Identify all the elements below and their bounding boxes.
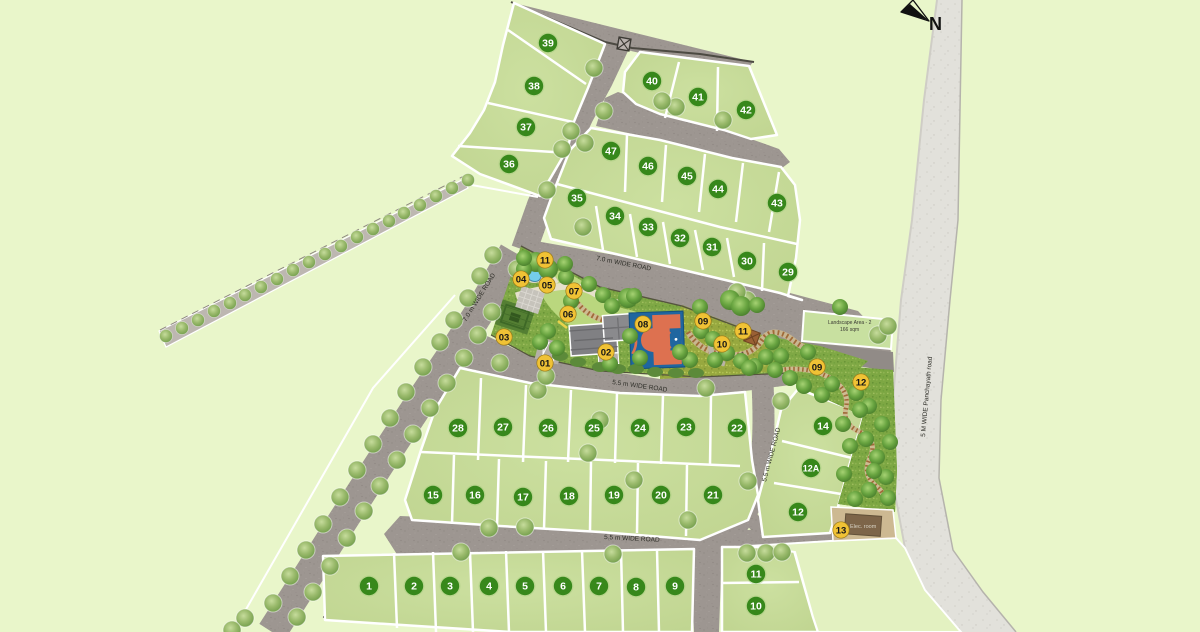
svg-text:24: 24 <box>634 423 646 435</box>
svg-text:3: 3 <box>447 581 453 593</box>
svg-text:47: 47 <box>605 146 617 158</box>
svg-text:32: 32 <box>674 233 686 245</box>
svg-text:39: 39 <box>542 38 554 50</box>
svg-text:14: 14 <box>817 421 829 433</box>
svg-text:46: 46 <box>642 161 654 173</box>
svg-text:9: 9 <box>672 581 678 593</box>
svg-text:166 sqm: 166 sqm <box>840 327 859 333</box>
svg-text:38: 38 <box>528 81 540 93</box>
svg-text:41: 41 <box>692 92 704 104</box>
svg-text:33: 33 <box>642 222 654 234</box>
svg-text:1: 1 <box>366 581 372 593</box>
svg-text:Elec. room: Elec. room <box>850 524 877 530</box>
svg-text:20: 20 <box>655 490 667 502</box>
svg-text:N: N <box>929 14 942 34</box>
svg-text:23: 23 <box>680 422 692 434</box>
svg-text:01: 01 <box>540 358 551 369</box>
svg-text:12: 12 <box>856 377 867 388</box>
svg-text:10: 10 <box>750 601 762 613</box>
svg-text:22: 22 <box>731 423 743 435</box>
svg-text:6: 6 <box>560 581 566 593</box>
svg-text:31: 31 <box>706 242 718 254</box>
svg-text:16: 16 <box>469 490 481 502</box>
svg-text:27: 27 <box>497 422 509 434</box>
svg-text:09: 09 <box>698 316 709 327</box>
svg-text:21: 21 <box>707 490 719 502</box>
svg-text:26: 26 <box>542 423 554 435</box>
svg-text:29: 29 <box>782 267 794 279</box>
svg-text:06: 06 <box>563 309 574 320</box>
svg-text:42: 42 <box>740 105 752 117</box>
svg-text:12: 12 <box>792 507 804 519</box>
svg-text:18: 18 <box>563 491 575 503</box>
svg-text:17: 17 <box>517 492 529 504</box>
svg-text:11: 11 <box>738 326 749 337</box>
svg-text:05: 05 <box>542 280 553 291</box>
svg-text:09: 09 <box>812 362 823 373</box>
svg-text:34: 34 <box>609 211 621 223</box>
svg-text:08: 08 <box>638 319 649 330</box>
svg-text:02: 02 <box>601 347 612 358</box>
svg-text:11: 11 <box>750 569 761 581</box>
svg-text:25: 25 <box>588 423 600 435</box>
svg-text:15: 15 <box>427 490 439 502</box>
svg-text:36: 36 <box>503 159 515 171</box>
svg-text:12A: 12A <box>803 464 820 474</box>
svg-text:13: 13 <box>836 525 847 536</box>
svg-text:04: 04 <box>516 274 527 285</box>
svg-text:44: 44 <box>712 184 724 196</box>
svg-text:40: 40 <box>646 76 658 88</box>
svg-text:37: 37 <box>520 122 532 134</box>
svg-text:10: 10 <box>717 339 728 350</box>
svg-text:5: 5 <box>522 581 528 593</box>
svg-text:03: 03 <box>499 332 510 343</box>
svg-text:4: 4 <box>486 581 492 593</box>
svg-text:43: 43 <box>771 198 783 210</box>
svg-text:Landscape Area - 2: Landscape Area - 2 <box>828 320 872 326</box>
svg-text:45: 45 <box>681 171 693 183</box>
svg-text:19: 19 <box>608 490 620 502</box>
svg-text:8: 8 <box>633 582 639 594</box>
svg-text:2: 2 <box>411 581 417 593</box>
svg-text:30: 30 <box>741 256 753 268</box>
svg-text:28: 28 <box>452 423 464 435</box>
svg-text:35: 35 <box>571 193 583 205</box>
svg-text:7: 7 <box>596 581 602 593</box>
svg-text:07: 07 <box>569 286 580 297</box>
svg-text:11: 11 <box>540 255 551 266</box>
